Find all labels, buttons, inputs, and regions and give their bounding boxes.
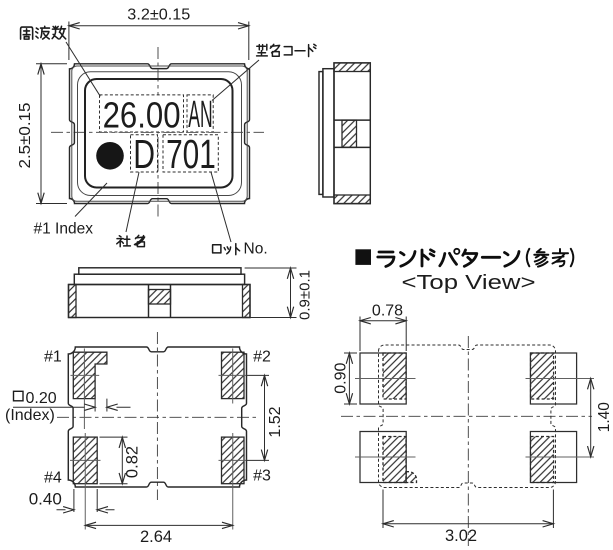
svg-text:#4: #4 xyxy=(44,470,62,487)
svg-text:D: D xyxy=(133,131,155,177)
svg-text:3.02: 3.02 xyxy=(445,527,477,545)
svg-text:0.9±0.1: 0.9±0.1 xyxy=(297,270,314,320)
svg-text:2.64: 2.64 xyxy=(140,528,172,546)
svg-text:0.82: 0.82 xyxy=(124,446,142,478)
svg-text:(Index): (Index) xyxy=(5,407,55,424)
svg-text:2.5±0.15: 2.5±0.15 xyxy=(17,103,34,169)
svg-text:26.00: 26.00 xyxy=(103,94,181,135)
svg-text:701: 701 xyxy=(166,131,216,177)
svg-text:3.2±0.15: 3.2±0.15 xyxy=(127,7,190,24)
svg-text:#3: #3 xyxy=(253,468,271,485)
svg-text:0.20: 0.20 xyxy=(26,390,57,407)
svg-text:No.: No. xyxy=(244,241,268,258)
svg-text:AN: AN xyxy=(188,94,212,136)
svg-text:0.40: 0.40 xyxy=(29,489,62,508)
svg-text:0.78: 0.78 xyxy=(372,303,403,320)
svg-text:#1: #1 xyxy=(44,348,62,365)
svg-text:0.90: 0.90 xyxy=(333,363,350,394)
svg-text:1.52: 1.52 xyxy=(267,406,284,437)
svg-text:#1 Index: #1 Index xyxy=(34,221,94,238)
svg-text:1.40: 1.40 xyxy=(596,402,613,433)
svg-text:<Top View>: <Top View> xyxy=(402,272,536,294)
svg-text:#2: #2 xyxy=(253,348,271,365)
